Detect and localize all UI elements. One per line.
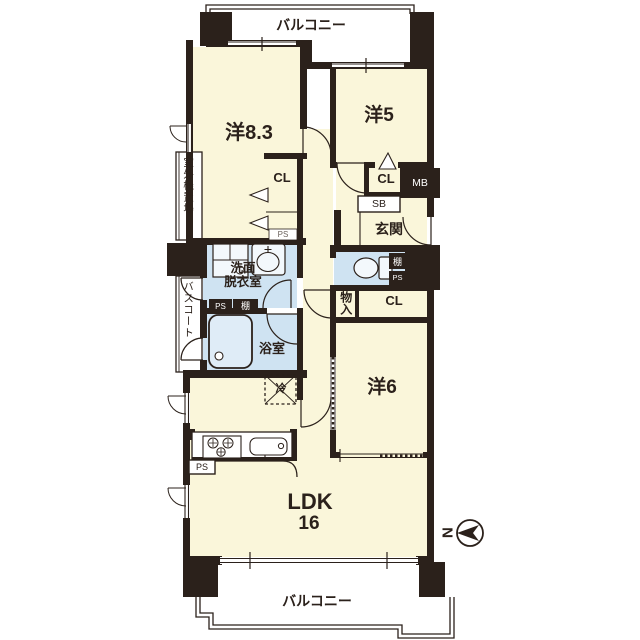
storage-label: 物入: [338, 291, 352, 321]
floor-plan-drawing: [0, 0, 640, 640]
hallway-floor: [303, 129, 333, 399]
bathroom-label: 浴室: [246, 342, 298, 357]
floor-plan: バルコニー 洋8.3 洋5 CL PS CL MB SB 玄関 室外機置場 バス…: [0, 0, 640, 640]
compass-north-label: N: [438, 523, 455, 543]
closet-83-label: CL: [262, 171, 302, 186]
toilet-icon: [354, 257, 392, 279]
room-5-label: 洋5: [339, 105, 419, 127]
shelf-toilet-label: 棚: [389, 257, 406, 267]
compass: [457, 520, 483, 546]
shoe-box-label: SB: [358, 198, 400, 210]
meter-box-label: MB: [400, 177, 440, 189]
opening-room6-left: [330, 357, 336, 430]
balcony-top-label: バルコニー: [251, 17, 371, 33]
ps-kitchen-label: PS: [189, 462, 215, 472]
balcony-bottom-label: バルコニー: [257, 593, 377, 609]
bath-court-label: バスコート: [182, 281, 194, 369]
window-ldk-left-1: [168, 393, 189, 423]
outdoor-unit-label: 室外機置場: [182, 157, 194, 237]
ldk-size-label: 16: [259, 513, 359, 535]
window-room83-left: [170, 124, 192, 152]
ps-closet-label: PS: [269, 230, 297, 239]
shelf-washroom-label: 棚: [233, 301, 258, 311]
ps-washroom-label: PS: [209, 302, 232, 311]
window-ldk-left-2: [168, 485, 189, 518]
washroom-label: 洗面 脱衣室: [205, 261, 281, 290]
ldk-label: LDK: [260, 489, 360, 514]
room-6-label: 洋6: [342, 377, 422, 399]
ps-toilet-label: PS: [389, 274, 406, 283]
stove-icon: [203, 436, 241, 458]
fridge-label: 冷: [269, 383, 293, 396]
entrance-label: 玄関: [359, 221, 419, 237]
closet-6-label: CL: [374, 294, 414, 309]
room-83-label: 洋8.3: [199, 122, 299, 145]
